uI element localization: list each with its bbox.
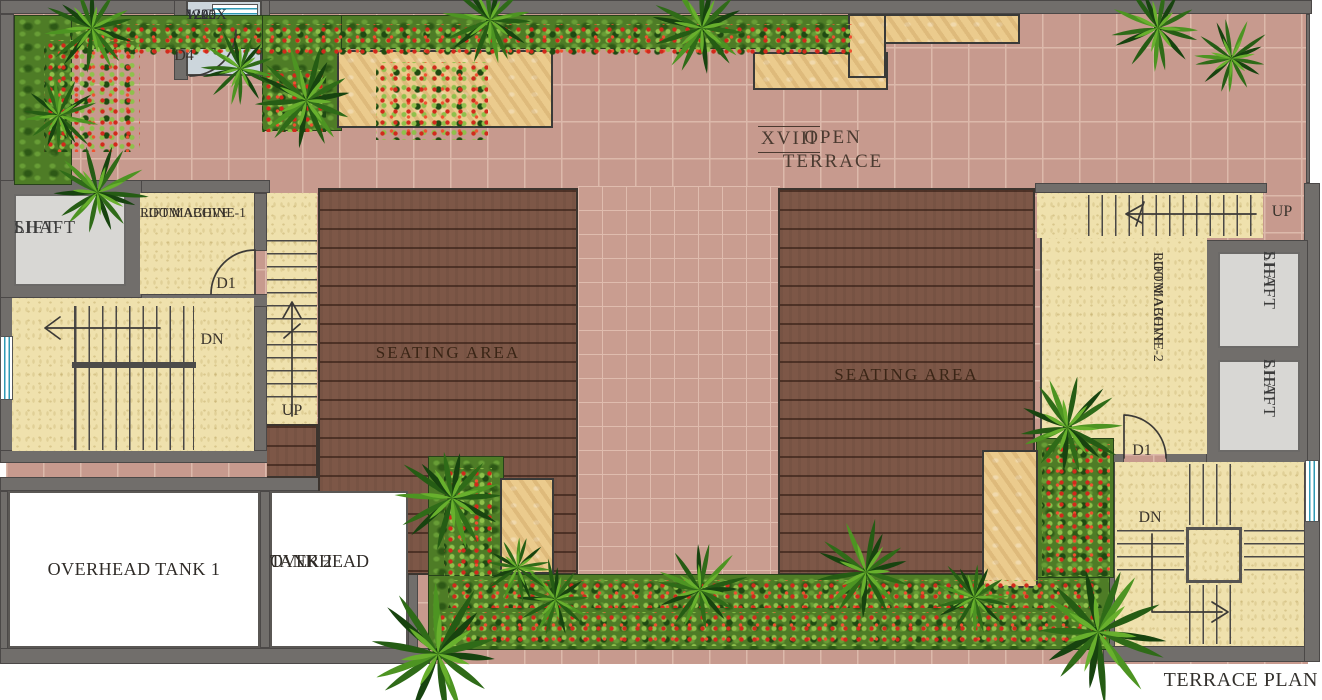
wall-segment [254, 193, 267, 251]
wall-segment [260, 491, 270, 648]
flower-column-arm-right [1042, 444, 1110, 576]
window-right-wall [1305, 460, 1319, 522]
wall-segment [254, 306, 267, 454]
tank2-line2: TANK 2 [270, 548, 332, 574]
wall-segment [0, 491, 8, 663]
wall-segment [0, 648, 430, 664]
seating-area-right-label: SEATING AREA [778, 364, 1035, 385]
wall-segment [1306, 14, 1310, 183]
stair-left-dn-label: DN [190, 330, 234, 350]
walkway-tiles [578, 186, 780, 576]
shaft-rb-line2: SHAFT [1259, 359, 1280, 418]
wall-segment [140, 180, 270, 193]
window-left-wall [0, 336, 13, 400]
flower-column-arm-left [444, 468, 492, 576]
wall-segment [1035, 183, 1267, 193]
flower-patch-platform [376, 62, 488, 140]
wall-segment [0, 450, 268, 463]
stone-slab-right [982, 450, 1038, 588]
flower-column-left [44, 40, 140, 152]
lift-shaft-right-top-label: LIFT SHAFT [1236, 251, 1280, 347]
stair-left-up-label: UP [267, 401, 317, 421]
stair-right-dn-flight-left [1117, 530, 1184, 580]
stair-right-up-treads [1088, 195, 1262, 236]
flower-row-bottom-1 [448, 580, 1102, 608]
plan-caption: TERRACE PLAN [1060, 668, 1318, 693]
door-label-d1-right: D1 [1122, 441, 1162, 461]
flower-row-bottom-2 [436, 612, 1106, 646]
stair-right-up-label: UP [1260, 202, 1304, 222]
terrace-numeral: XVIII [758, 126, 820, 153]
door-label-d4: D4 [164, 46, 204, 66]
stair-left-treads [74, 306, 194, 450]
wc-dim2: 1225 [186, 5, 216, 26]
wall-segment [1103, 646, 1308, 662]
stair-right-dn-flight-top [1189, 464, 1239, 525]
machine1-line2: ROOM ABOVE [140, 204, 230, 221]
stone-slab-left [500, 478, 554, 574]
stair-right-dn-flight-bottom [1189, 585, 1239, 644]
overhead-tank-1-label: OVERHEAD TANK 1 [10, 558, 258, 581]
machine2-line2: ROOM ABOVE [1146, 252, 1168, 345]
stair-left-landing-bar [72, 362, 196, 368]
door-label-d1-left: D1 [206, 274, 246, 294]
seating-area-left-label: SEATING AREA [318, 342, 578, 363]
shaft-rt-line2: SHAFT [1259, 251, 1280, 310]
stair-left-up-treads [267, 240, 317, 402]
lift-shaft-left-line2: SHAFT [14, 214, 76, 241]
lift-machine-room-2-label: LIFT MACHINE-2 ROOM ABOVE [1122, 252, 1168, 444]
terrace-floor-plan: OPEN TERRACE XVIII W.C. 1200X 1225 D4 LI… [0, 0, 1322, 700]
stair-right-dn-label: DN [1128, 508, 1172, 528]
stair-right-dn-flight-right [1244, 530, 1304, 580]
lift-shaft-right-bottom-label: LIFT SHAFT [1236, 359, 1280, 451]
stone-platform-topright-b [848, 14, 886, 78]
flower-patch-mid [262, 70, 326, 132]
stair-right-dn-landing [1186, 527, 1242, 583]
seating-deck-left-extension [267, 424, 318, 478]
